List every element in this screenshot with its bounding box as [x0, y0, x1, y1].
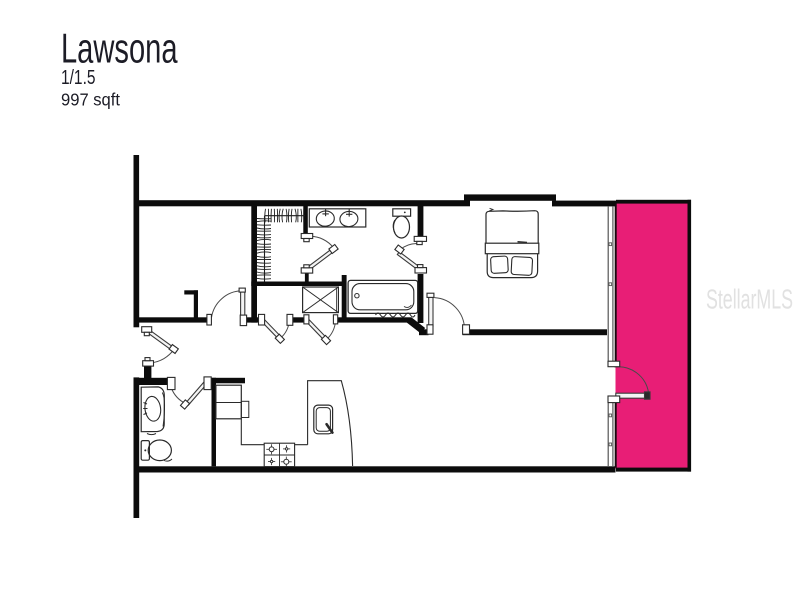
svg-text:StellarMLS: StellarMLS: [706, 284, 793, 315]
svg-text:Lawsona: Lawsona: [61, 25, 178, 72]
svg-text:997 sqft: 997 sqft: [61, 90, 120, 110]
svg-text:1/1.5: 1/1.5: [61, 67, 96, 89]
